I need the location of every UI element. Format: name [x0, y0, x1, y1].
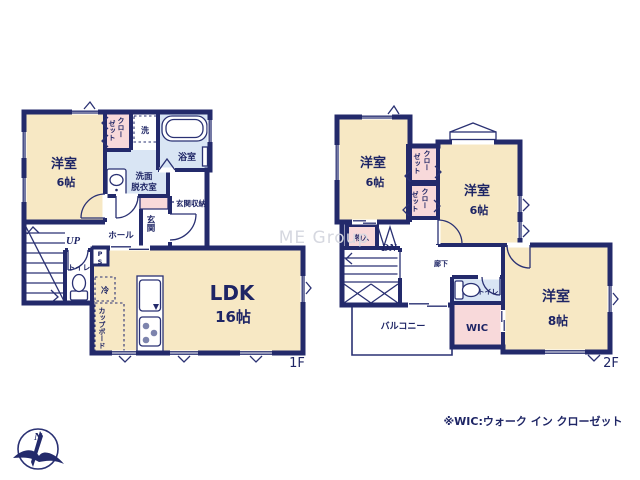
label-closet-1f-col2: ゼット: [108, 119, 116, 141]
bath-counter-icon: [203, 147, 208, 166]
vanity-sink-icon: [107, 169, 126, 196]
label-bath-1f: 浴室: [178, 151, 196, 163]
label-fridge-1f: 冷: [101, 285, 109, 295]
label-up-1f: UP: [66, 236, 81, 247]
label-ps-1f: PS: [96, 250, 104, 266]
floorplan-1f: 洋室 6帖 クロー ゼット 洗 浴室 洗面 脱衣室 玄関収納 玄関 ホール UP…: [22, 102, 312, 371]
label-ldk-name: LDK: [210, 281, 256, 305]
vent-mark-1f: [84, 102, 95, 109]
floorplan-2f: 洋室 6帖 クロー ゼット クロー ゼット 洋室 6帖 物入 DN 廊下 トイレ…: [335, 106, 619, 371]
label-bedroom3-2f-size: 8帖: [548, 313, 568, 328]
label-corridor-2f: 廊下: [434, 259, 448, 268]
label-closet2-2f-col2: ゼット: [411, 190, 419, 212]
label-toilet-1f: トイレ: [68, 263, 91, 272]
door-arc-entrance-1f: [170, 214, 196, 240]
bay-window-sill-2f: [450, 132, 496, 140]
label-closet1-2f-col1: クロー: [423, 150, 431, 171]
kitchen-counter-icon: [137, 276, 163, 353]
label-washer-1f: 洗: [141, 125, 149, 135]
label-wic-2f: WIC: [466, 323, 488, 334]
compass-wing: [13, 450, 64, 464]
label-closet-1f-col1: クロー: [117, 117, 125, 138]
label-bedroom3-2f-name: 洋室: [542, 288, 570, 305]
label-bedroom-1f-name: 洋室: [51, 156, 77, 172]
watermark: ME Group: [279, 228, 370, 248]
bathtub-icon: [162, 116, 207, 141]
label-balcony-2f: バルコニー: [381, 321, 426, 332]
floorplan-page: 洋室 6帖 クロー ゼット 洗 浴室 洗面 脱衣室 玄関収納 玄関 ホール UP…: [0, 0, 640, 480]
label-washroom-1f-line1: 洗面: [135, 171, 153, 182]
room-ldk-1f: [92, 248, 303, 353]
label-hall-1f: ホール: [108, 231, 134, 241]
compass-icon: N: [13, 429, 64, 469]
toilet-icon-1f: [71, 275, 88, 301]
label-cupboard-1f: カップボード: [98, 307, 106, 349]
vent-mark-2f: [388, 106, 399, 114]
label-closet2-2f-col1: クロー: [421, 188, 429, 209]
stairs-2f: [342, 253, 400, 303]
label-closet1-2f-col2: ゼット: [413, 152, 421, 174]
label-toilet-2f: トイレ: [478, 288, 499, 296]
label-ldk-size: 16帖: [215, 308, 251, 326]
floorplan-canvas: 洋室 6帖 クロー ゼット 洗 浴室 洗面 脱衣室 玄関収納 玄関 ホール UP…: [0, 0, 640, 480]
label-bedroom2-2f-size: 6帖: [470, 203, 489, 217]
bay-window-peak-2f: [450, 123, 496, 132]
label-bedroom2-2f-name: 洋室: [464, 183, 490, 199]
label-entrance-storage-1f: 玄関収納: [176, 198, 206, 208]
note-text: ※WIC:ウォーク イン クローゼット: [443, 414, 622, 428]
label-bedroom1-2f-name: 洋室: [360, 155, 386, 171]
label-bedroom-1f-size: 6帖: [57, 175, 76, 189]
floor-label-2f: 2F: [603, 356, 619, 371]
label-entrance-1f: 玄関: [145, 214, 155, 233]
floor-label-1f: 1F: [289, 356, 305, 371]
label-washroom-1f-line2: 脱衣室: [131, 182, 157, 193]
label-bedroom1-2f-size: 6帖: [366, 175, 385, 189]
label-dn-2f: DN: [380, 243, 397, 254]
door-arc-washroom-1f: [116, 196, 138, 218]
stairs-1f: [24, 223, 65, 303]
